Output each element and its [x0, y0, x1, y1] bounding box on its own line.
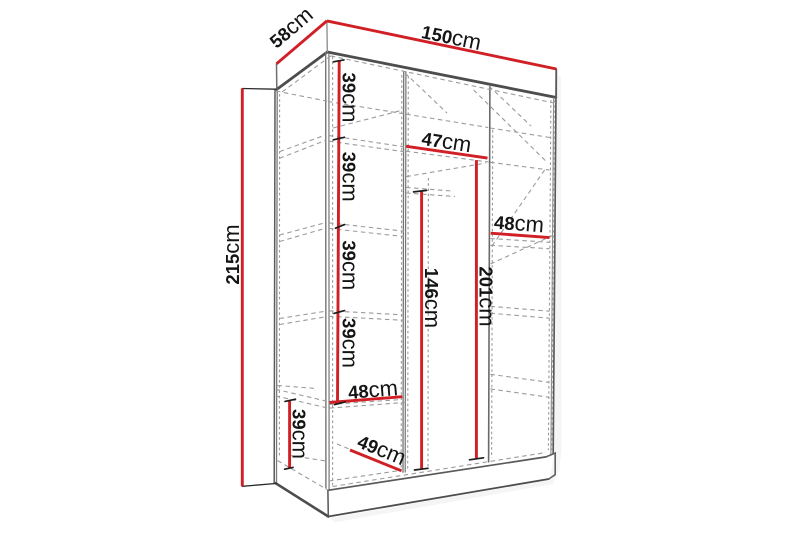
svg-text:58cm: 58cm: [264, 2, 318, 53]
svg-text:201cm: 201cm: [475, 266, 500, 326]
svg-text:150cm: 150cm: [420, 18, 484, 55]
svg-text:48cm: 48cm: [347, 375, 399, 404]
svg-text:39cm: 39cm: [288, 409, 313, 459]
svg-text:146cm: 146cm: [420, 268, 445, 328]
svg-text:48cm: 48cm: [493, 209, 545, 238]
svg-text:47cm: 47cm: [420, 125, 473, 157]
svg-text:39cm: 39cm: [338, 73, 363, 123]
svg-text:215cm: 215cm: [219, 224, 244, 284]
svg-text:39cm: 39cm: [338, 240, 363, 290]
svg-text:39cm: 39cm: [338, 318, 363, 368]
svg-text:39cm: 39cm: [338, 152, 363, 202]
